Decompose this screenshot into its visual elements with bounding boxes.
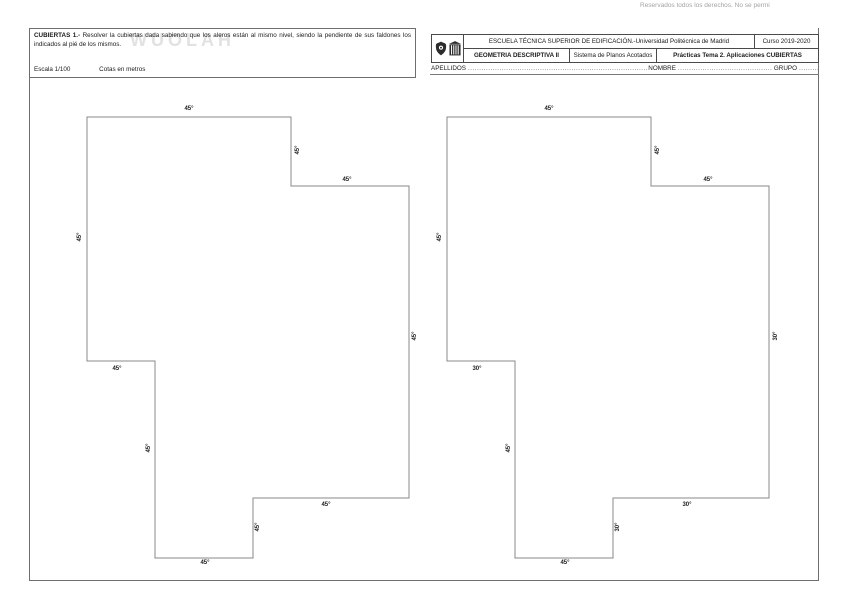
slope-angle-label: 45°: [412, 331, 418, 340]
roof-plan-right-outline: [447, 117, 769, 558]
slope-angle-label: 45°: [342, 177, 351, 183]
task-statement: CUBIERTAS 1.- Resolver la cubiertas dada…: [34, 32, 411, 49]
worksheet-page: Reservados todos los derechos. No se per…: [0, 0, 848, 599]
slope-angle-label: 45°: [255, 522, 261, 531]
slope-angle-label: 45°: [295, 145, 301, 154]
slope-angle-label: 45°: [77, 232, 83, 241]
slope-angle-label: 45°: [112, 366, 121, 372]
slope-angle-label: 30°: [773, 331, 779, 340]
scale-label: Escala 1/100: [34, 66, 70, 73]
task-body: Resolver la cubiertas dada sabiendo que …: [34, 32, 411, 48]
slope-angle-label: 45°: [506, 443, 512, 452]
slope-angle-label: 45°: [437, 232, 443, 241]
slope-angle-label: 45°: [184, 106, 193, 112]
roof-plan-left-outline: [87, 117, 409, 558]
slope-angle-label: 45°: [560, 560, 569, 566]
slope-angle-label: 45°: [544, 106, 553, 112]
slope-angle-label: 30°: [615, 522, 621, 531]
slope-angle-label: 45°: [321, 502, 330, 508]
slope-angle-label: 45°: [703, 177, 712, 183]
slope-angle-label: 45°: [200, 560, 209, 566]
roof-plans-canvas: [0, 0, 848, 599]
scale-line: Escala 1/100 Cotas en metros: [34, 66, 145, 73]
slope-angle-label: 45°: [655, 145, 661, 154]
task-title: CUBIERTAS 1.-: [34, 32, 80, 39]
slope-angle-label: 30°: [472, 366, 481, 372]
slope-angle-label: 30°: [682, 502, 691, 508]
units-label: Cotas en metros: [99, 66, 145, 73]
slope-angle-label: 45°: [146, 443, 152, 452]
